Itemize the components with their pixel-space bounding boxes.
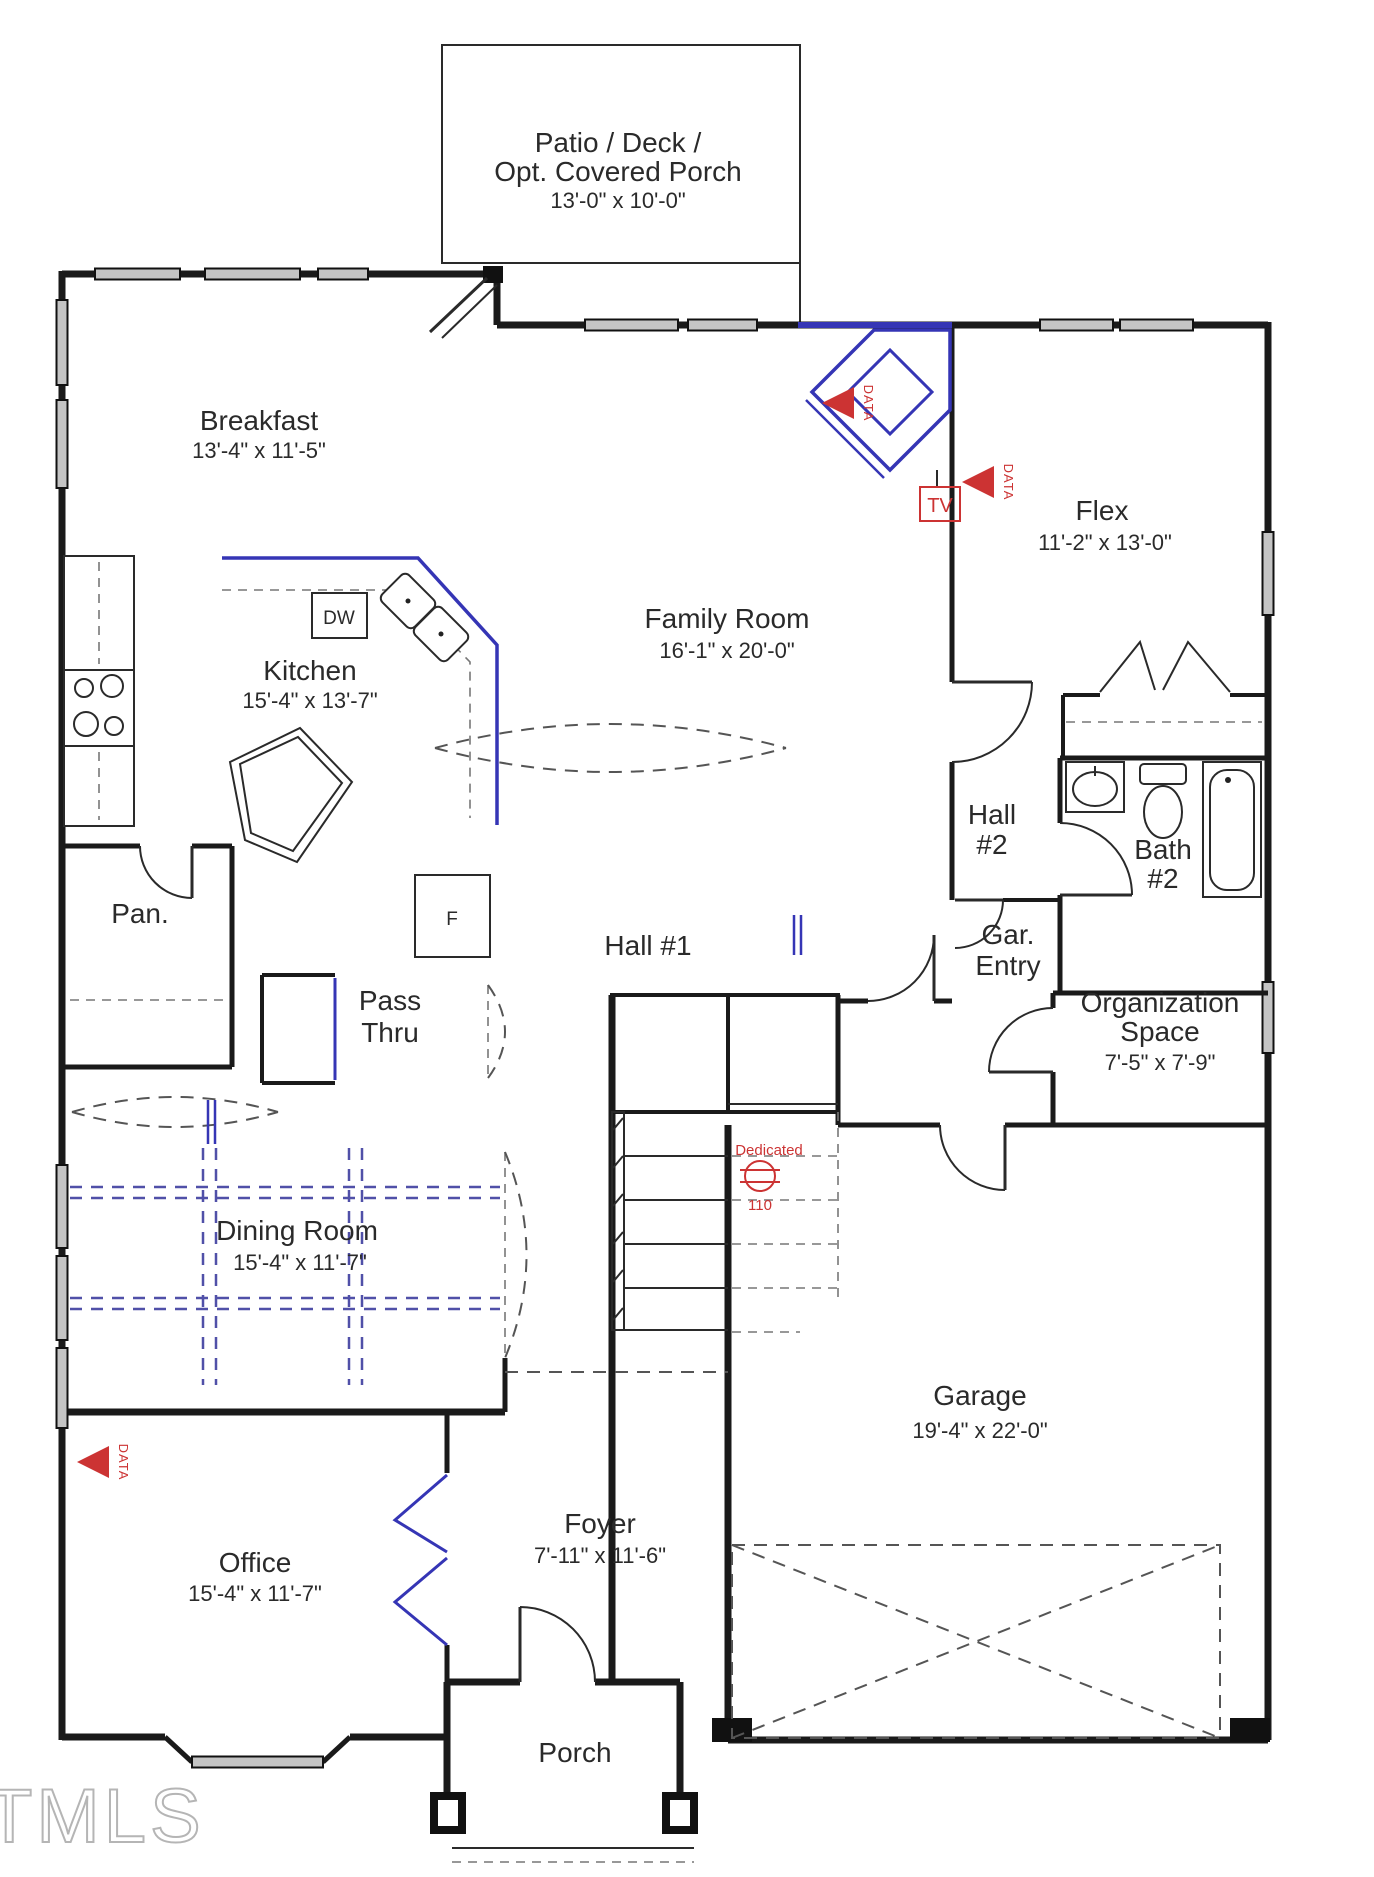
gar-entry-label-1: Gar. <box>982 919 1035 950</box>
patio-label-1: Patio / Deck / <box>535 127 702 158</box>
data-label-3: DATA <box>116 1444 131 1481</box>
dedicated-outlet-icon: Dedicated 110 <box>735 1142 803 1214</box>
toilet <box>1140 764 1186 838</box>
bath-2-label-2: #2 <box>1147 863 1178 894</box>
organization-label-1: Organization <box>1081 987 1240 1018</box>
dishwasher-label: DW <box>323 608 355 629</box>
cased-openings <box>72 724 801 1358</box>
bath-2-label-1: Bath <box>1134 834 1192 865</box>
kitchen-island <box>230 728 352 862</box>
dining-room-dims: 15'-4" x 11'-7" <box>233 1250 367 1275</box>
dedicated-110-label: 110 <box>748 1197 772 1214</box>
bath-sink <box>1066 762 1124 812</box>
kitchen-label: Kitchen <box>263 655 356 686</box>
tmls-watermark: TMLS <box>0 1774 205 1859</box>
dining-room-label: Dining Room <box>216 1215 378 1246</box>
hall-1-label: Hall #1 <box>604 930 691 961</box>
flex-dims: 11'-2" x 13'-0" <box>1038 530 1172 555</box>
dedicated-label: Dedicated <box>735 1142 803 1159</box>
fridge-label: F <box>446 909 458 930</box>
tv-label: TV <box>927 495 953 517</box>
hall-2-label-1: Hall <box>968 799 1016 830</box>
pass-thru-label-2: Thru <box>361 1017 419 1048</box>
porch-label: Porch <box>538 1737 611 1768</box>
breakfast-dims: 13'-4" x 11'-5" <box>192 438 326 463</box>
garage-door-area <box>732 1545 1220 1738</box>
flex-label: Flex <box>1076 495 1129 526</box>
bathtub <box>1203 762 1261 897</box>
floor-plan-page: DATA TV DATA DATA Dedicated 110 Patio / … <box>0 0 1374 1877</box>
electrical-annotations: DATA TV DATA DATA Dedicated 110 <box>77 385 1016 1481</box>
organization-label-2: Space <box>1120 1016 1199 1047</box>
kitchen-dims: 15'-4" x 13'-7" <box>242 688 377 713</box>
kitchen-counter <box>64 556 497 957</box>
data-outlet-icon-office: DATA <box>77 1444 131 1481</box>
garage-label: Garage <box>933 1380 1026 1411</box>
foyer-dims: 7'-11" x 11'-6" <box>534 1543 666 1568</box>
office-label: Office <box>219 1547 292 1578</box>
gar-entry-label-2: Entry <box>975 950 1040 981</box>
hall-2-label-2: #2 <box>976 829 1007 860</box>
data-label-2: DATA <box>1001 464 1016 501</box>
french-doors <box>395 1475 447 1645</box>
garage-dims: 19'-4" x 22'-0" <box>912 1418 1047 1443</box>
data-outlet-icon-fireplace: DATA <box>822 385 876 422</box>
patio-label-2: Opt. Covered Porch <box>494 156 741 187</box>
patio-dims: 13'-0" x 10'-0" <box>550 188 685 213</box>
office-dims: 15'-4" x 11'-7" <box>188 1581 322 1606</box>
organization-dims: 7'-5" x 7'-9" <box>1105 1050 1216 1075</box>
kitchen-sink <box>378 571 470 663</box>
floor-plan-drawing: DATA TV DATA DATA Dedicated 110 Patio / … <box>0 0 1374 1877</box>
pantry-label: Pan. <box>111 898 169 929</box>
foyer-label: Foyer <box>564 1508 636 1539</box>
data-label-1: DATA <box>861 385 876 422</box>
family-room-label: Family Room <box>645 603 810 634</box>
porch-structure <box>430 1682 698 1862</box>
breakfast-label: Breakfast <box>200 405 318 436</box>
data-outlet-icon-flex: DATA <box>962 464 1016 501</box>
pass-thru-label-1: Pass <box>359 985 421 1016</box>
room-labels: Patio / Deck / Opt. Covered Porch 13'-0"… <box>111 127 1239 1768</box>
family-room-dims: 16'-1" x 20'-0" <box>659 638 794 663</box>
